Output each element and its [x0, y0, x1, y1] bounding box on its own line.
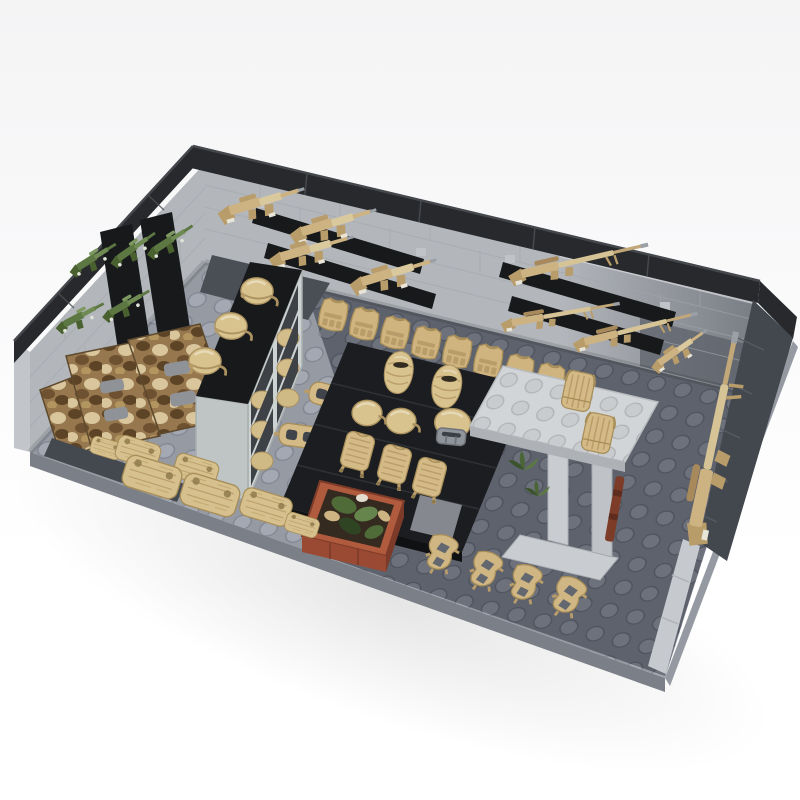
table-leg	[548, 448, 568, 545]
armory-set-illustration	[0, 0, 800, 800]
product-photo	[0, 0, 800, 800]
table-leg	[592, 458, 612, 557]
